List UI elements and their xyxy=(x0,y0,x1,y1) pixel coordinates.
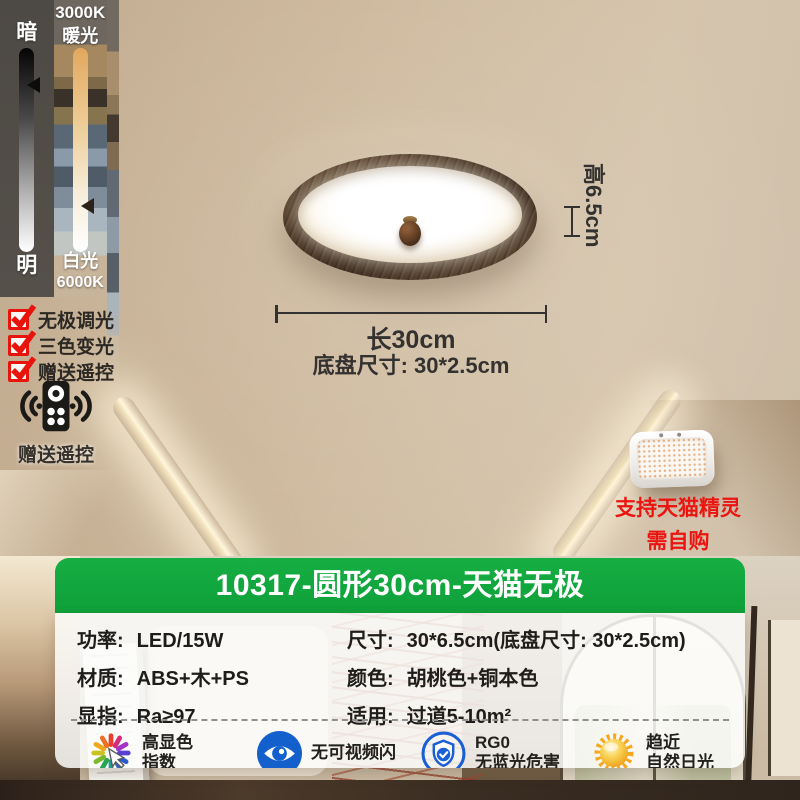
spec-power: 功率: LED/15W xyxy=(77,624,343,653)
red-checkbox-icon xyxy=(8,309,29,330)
light-control-panel: 暗 明 3000K 暖光 白光 6000K xyxy=(0,0,107,297)
warm-light-label: 暖光 xyxy=(54,22,108,48)
product-infographic: 暗 明 3000K 暖光 白光 6000K 无极调光 三色变光 xyxy=(0,0,800,800)
spec-value: Ra≥97 xyxy=(137,706,196,729)
brightness-slider-thumb[interactable] xyxy=(27,77,40,93)
spec-label: 颜色: xyxy=(347,662,394,691)
base-dimension-label: 底盘尺寸: 30*2.5cm xyxy=(255,348,567,380)
warm-temp-value: 3000K xyxy=(54,3,108,23)
spec-color: 颜色: 胡桃色+铜本色 xyxy=(347,662,727,691)
badge-label-line1: 高显色 xyxy=(142,733,193,753)
color-temp-slider-thumb[interactable] xyxy=(81,198,94,214)
spec-label: 功率: xyxy=(77,624,124,653)
white-light-label: 白光 xyxy=(54,247,108,273)
badge-label-line2: 无蓝光危害 xyxy=(475,753,560,768)
speaker-grille xyxy=(636,437,707,480)
badge-no-blue-light: RG0 无蓝光危害 xyxy=(421,728,560,768)
feature-label: 无极调光 xyxy=(38,306,114,333)
badge-label-line1: 趋近 xyxy=(646,733,714,753)
color-temp-slider-track[interactable] xyxy=(73,48,88,252)
badge-label-line2: 指数 xyxy=(142,753,193,768)
remote-control-badge: 赠送遥控 xyxy=(8,379,104,467)
speaker-caption: 支持天猫精灵 需自购 xyxy=(588,492,768,555)
dashed-divider xyxy=(71,719,729,721)
height-dimension-bracket xyxy=(564,206,580,237)
width-dimension-line xyxy=(275,312,547,314)
brightness-min-label: 明 xyxy=(0,249,54,279)
product-info-panel: 10317-圆形30cm-天猫无极 功率: LED/15W 尺寸: 30*6.5… xyxy=(55,558,745,768)
spec-value: LED/15W xyxy=(137,630,224,653)
brightness-slider-column: 暗 明 xyxy=(0,0,54,297)
white-temp-value: 6000K xyxy=(54,274,108,292)
badge-natural-daylight: 趋近 自然日光 xyxy=(591,728,714,768)
shield-check-icon xyxy=(421,731,466,769)
room-arched-mirror-right xyxy=(768,620,800,776)
badge-label-line1: RG0 xyxy=(475,733,560,753)
spec-label: 显指: xyxy=(77,700,124,729)
spec-size: 尺寸: 30*6.5cm(底盘尺寸: 30*2.5cm) xyxy=(347,624,727,653)
color-temp-slider-column: 3000K 暖光 白光 6000K xyxy=(54,0,108,297)
room-floor xyxy=(0,780,800,800)
brightness-max-label: 暗 xyxy=(0,16,54,46)
room-floor-lamp-pole xyxy=(745,606,758,800)
badge-no-flicker: 无可视频闪 xyxy=(257,728,396,768)
red-checkbox-icon xyxy=(8,335,29,356)
speaker-buttons xyxy=(659,433,663,437)
spec-value: 30*6.5cm(底盘尺寸: 30*2.5cm) xyxy=(407,624,686,653)
height-dimension-label: 高6.5cm xyxy=(579,163,611,247)
spec-label: 尺寸: xyxy=(347,624,394,653)
remote-control-icon xyxy=(11,379,101,435)
spec-label: 材质: xyxy=(77,662,124,691)
product-title-banner: 10317-圆形30cm-天猫无极 xyxy=(55,558,745,613)
sun-icon xyxy=(591,730,637,768)
badge-label-line1: 无可视频闪 xyxy=(311,743,396,763)
ceiling-lamp xyxy=(283,154,537,280)
spec-label: 适用: xyxy=(347,700,394,729)
smart-speaker xyxy=(629,430,715,489)
spec-material: 材质: ABS+木+PS xyxy=(77,662,343,691)
spec-value: 过道5-10m² xyxy=(407,700,511,729)
color-wheel-icon xyxy=(89,731,133,768)
lamp-diffuser xyxy=(298,166,522,263)
spec-table: 功率: LED/15W 尺寸: 30*6.5cm(底盘尺寸: 30*2.5cm)… xyxy=(77,624,727,729)
speaker-caption-line1: 支持天猫精灵 xyxy=(588,492,768,522)
remote-caption: 赠送遥控 xyxy=(8,440,104,467)
feature-label: 三色变光 xyxy=(38,332,114,359)
product-spec-body: 功率: LED/15W 尺寸: 30*6.5cm(底盘尺寸: 30*2.5cm)… xyxy=(55,613,745,768)
badge-high-cri: 高显色 指数 xyxy=(89,728,193,768)
speaker-caption-line2: 需自购 xyxy=(588,525,768,555)
spec-value: 胡桃色+铜本色 xyxy=(407,662,539,691)
spec-value: ABS+木+PS xyxy=(137,662,249,691)
lamp-knob xyxy=(399,221,421,246)
eye-icon xyxy=(257,731,302,769)
cove-light-left xyxy=(109,393,249,579)
spec-area: 适用: 过道5-10m² xyxy=(347,700,727,729)
spec-cri: 显指: Ra≥97 xyxy=(77,700,343,729)
ceiling-glow-left xyxy=(0,470,120,560)
feature-checklist: 无极调光 三色变光 赠送遥控 xyxy=(8,306,114,384)
badge-label-line2: 自然日光 xyxy=(646,753,714,768)
